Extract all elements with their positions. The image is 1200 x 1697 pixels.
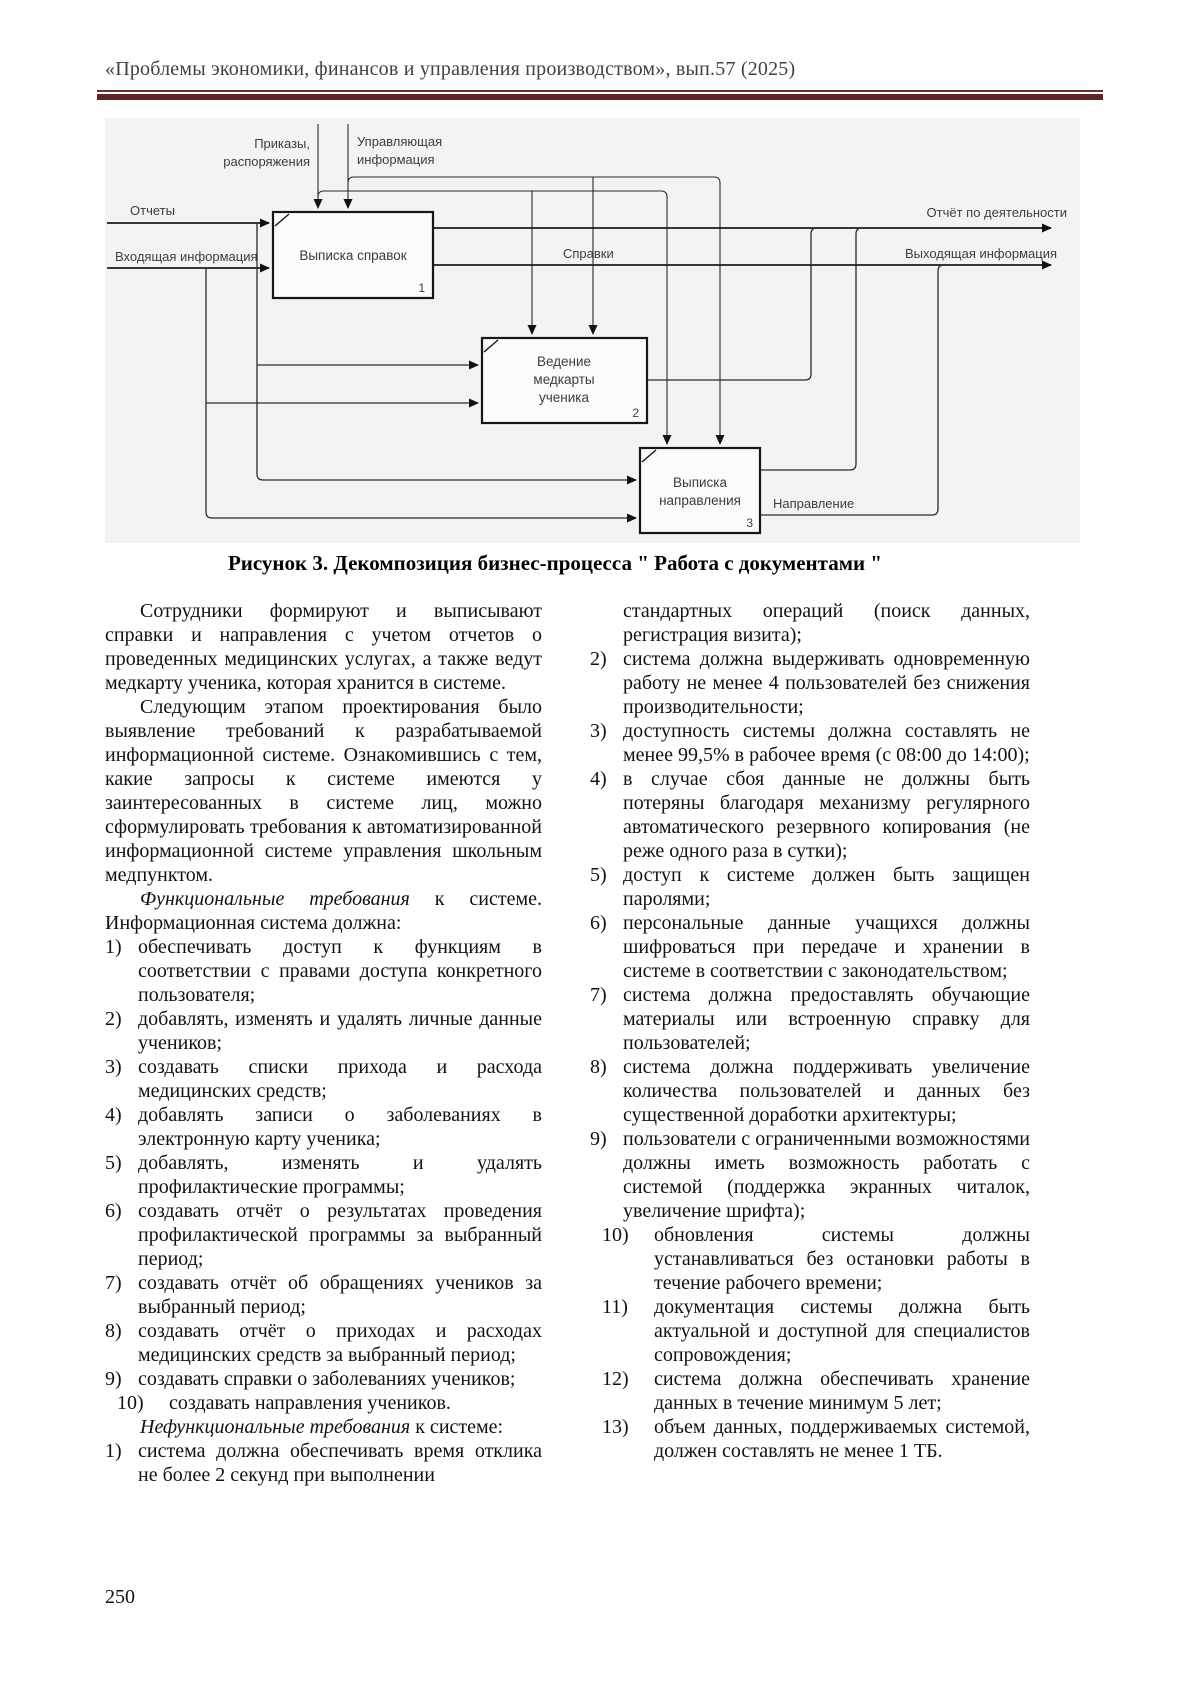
list-item-number: 2): [590, 647, 623, 671]
list-item: 10)обновления системы должны устанавлива…: [602, 1223, 1030, 1295]
list-item-text: создавать справки о заболеваниях ученико…: [138, 1367, 542, 1391]
list-item-text: система должна обеспечивать время отклик…: [138, 1439, 542, 1487]
header-rule-thick-band: [97, 94, 1103, 100]
paragraph: Следующим этапом проектирования было выя…: [105, 695, 542, 887]
body-columns: Сотрудники формируют и выписывают справк…: [105, 599, 1030, 1487]
list-item-text: доступность системы должна составлять не…: [623, 719, 1030, 767]
list-item-number: 9): [105, 1367, 138, 1391]
arrow-label-otchet-po-deyatelnosti: Отчёт по деятельности: [927, 205, 1067, 220]
idef0-diagram: Выписка справок 1 Ведение медкарты учени…: [105, 118, 1080, 543]
arrow-label-otchety: Отчеты: [130, 203, 175, 218]
list-item: 2)система должна выдерживать одновременн…: [590, 647, 1030, 719]
list-item-number: 10): [602, 1223, 654, 1247]
list-item: 3)создавать списки прихода и расхода мед…: [105, 1055, 542, 1103]
left-column: Сотрудники формируют и выписывают справк…: [105, 599, 542, 1487]
list-item-number: 7): [590, 983, 623, 1007]
list-item-number: 12): [602, 1367, 654, 1391]
process-box-1-number: 1: [418, 281, 425, 295]
header-rule: [97, 90, 1103, 103]
lead-rest: к системе:: [410, 1416, 503, 1438]
list-item: 6)персональные данные учащихся должны ши…: [590, 911, 1030, 983]
list-item: 3)доступность системы должна составлять …: [590, 719, 1030, 767]
arrow-label-spravki: Справки: [563, 246, 614, 261]
list-item-text: персональные данные учащихся должны шифр…: [623, 911, 1030, 983]
process-box-2-label-line2: медкарты: [533, 372, 594, 387]
list-item-number: 8): [105, 1319, 138, 1343]
list-item-text: создавать отчёт об обращениях учеников з…: [138, 1271, 542, 1319]
list-item-number: 6): [105, 1199, 138, 1223]
process-box-3-label-line1: Выписка: [673, 475, 728, 490]
journal-page: «Проблемы экономики, финансов и управлен…: [0, 0, 1200, 1697]
lead-italic: Функциональные требования: [140, 888, 410, 910]
list-item: 6)создавать отчёт о результатах проведен…: [105, 1199, 542, 1271]
process-box-3-number: 3: [746, 516, 753, 530]
list-item: 4)добавлять записи о заболеваниях в элек…: [105, 1103, 542, 1151]
list-item: 12)система должна обеспечивать хранение …: [602, 1367, 1030, 1415]
list-item: 8)система должна поддерживать увеличение…: [590, 1055, 1030, 1127]
arrow-label-upravlyayushchaya-line1: Управляющая: [357, 134, 442, 149]
list-item-text: пользователи с ограниченными возможностя…: [623, 1127, 1030, 1223]
list-item-text: система должна предоставлять обучающие м…: [623, 983, 1030, 1055]
list-item-text: добавлять, изменять и удалять личные дан…: [138, 1007, 542, 1055]
list-item: 7)создавать отчёт об обращениях учеников…: [105, 1271, 542, 1319]
list-item-text: добавлять, изменять и удалять профилакти…: [138, 1151, 542, 1199]
list-item: 13)объем данных, поддерживаемых системой…: [602, 1415, 1030, 1463]
process-box-3: Выписка направления 3: [640, 448, 760, 533]
lead-italic: Нефункциональные требования: [140, 1416, 410, 1438]
list-item: 1)система должна обеспечивать время откл…: [105, 1439, 542, 1487]
list-item-text: обновления системы должны устанавливатьс…: [654, 1223, 1030, 1295]
idef0-diagram-svg: Выписка справок 1 Ведение медкарты учени…: [105, 118, 1080, 543]
list-item-text: система должна поддерживать увеличение к…: [623, 1055, 1030, 1127]
list-item-text: в случае сбоя данные не должны быть поте…: [623, 767, 1030, 863]
list-item-text: создавать отчёт о приходах и расходах ме…: [138, 1319, 542, 1367]
arrow-label-upravlyayushchaya-line2: информация: [357, 152, 435, 167]
list-item-text: документация системы должна быть актуаль…: [654, 1295, 1030, 1367]
list-item-text: стандартных операций (поиск данных, реги…: [623, 599, 1030, 647]
arrow-label-prikazy-line1: Приказы,: [254, 136, 310, 151]
process-box-2-label-line3: ученика: [539, 390, 589, 405]
arrow-label-prikazy-line2: распоряжения: [223, 154, 310, 169]
journal-header: «Проблемы экономики, финансов и управлен…: [105, 58, 1105, 81]
list-item-text: обеспечивать доступ к функциям в соответ…: [138, 935, 542, 1007]
arrow-label-vhodyashchaya: Входящая информация: [115, 249, 258, 264]
list-item-text: создавать списки прихода и расхода медиц…: [138, 1055, 542, 1103]
process-box-3-label-line2: направления: [659, 493, 741, 508]
right-column: стандартных операций (поиск данных, реги…: [590, 599, 1030, 1487]
functional-requirements-lead: Функциональные требования к системе. Инф…: [105, 887, 542, 935]
list-item-text: система должна выдерживать одновременную…: [623, 647, 1030, 719]
list-item-number: 3): [105, 1055, 138, 1079]
list-item: 5)добавлять, изменять и удалять профилак…: [105, 1151, 542, 1199]
list-item: 5)доступ к системе должен быть защищен п…: [590, 863, 1030, 911]
list-item-number: 4): [105, 1103, 138, 1127]
list-item: 9)пользователи с ограниченными возможнос…: [590, 1127, 1030, 1223]
list-item-text: система должна обеспечивать хранение дан…: [654, 1367, 1030, 1415]
list-item: 9)создавать справки о заболеваниях учени…: [105, 1367, 542, 1391]
list-item: 8)создавать отчёт о приходах и расходах …: [105, 1319, 542, 1367]
output-merge-box2: [647, 228, 817, 380]
list-item-number: 1): [105, 935, 138, 959]
list-item-number: 10): [117, 1391, 169, 1415]
list-item-number: 8): [590, 1055, 623, 1079]
process-box-1-label: Выписка справок: [299, 248, 406, 263]
list-item-number: 5): [590, 863, 623, 887]
list-item: 11)документация системы должна быть акту…: [602, 1295, 1030, 1367]
list-item: 7)система должна предоставлять обучающие…: [590, 983, 1030, 1055]
list-item-text: объем данных, поддерживаемых системой, д…: [654, 1415, 1030, 1463]
list-item: 1)обеспечивать доступ к функциям в соотв…: [105, 935, 542, 1007]
figure-caption: Рисунок 3. Декомпозиция бизнес-процесса …: [105, 551, 1005, 576]
nonfunctional-requirements-lead: Нефункциональные требования к системе:: [105, 1415, 542, 1439]
output-merge-napravlenie: [760, 265, 944, 515]
process-box-1: Выписка справок 1: [273, 212, 433, 298]
list-item: 4)в случае сбоя данные не должны быть по…: [590, 767, 1030, 863]
list-item-number: 9): [590, 1127, 623, 1151]
paragraph: Сотрудники формируют и выписывают справк…: [105, 599, 542, 695]
arrow-label-vyhodyashchaya: Выходящая информация: [905, 246, 1057, 261]
list-item: 2)добавлять, изменять и удалять личные д…: [105, 1007, 542, 1055]
process-box-2-label-line1: Ведение: [537, 354, 591, 369]
list-item-number: 11): [602, 1295, 654, 1319]
process-box-2: Ведение медкарты ученика 2: [482, 338, 647, 423]
list-item-text: доступ к системе должен быть защищен пар…: [623, 863, 1030, 911]
list-item-number: 1): [105, 1439, 138, 1463]
list-item-number: 5): [105, 1151, 138, 1175]
list-item-number: 2): [105, 1007, 138, 1031]
list-item-number: 3): [590, 719, 623, 743]
list-item: 10)создавать направления учеников.: [117, 1391, 542, 1415]
arrow-label-napravlenie: Направление: [773, 496, 854, 511]
list-item-text: добавлять записи о заболеваниях в электр…: [138, 1103, 542, 1151]
list-item-text: создавать отчёт о результатах проведения…: [138, 1199, 542, 1271]
list-item-number: 13): [602, 1415, 654, 1439]
page-number: 250: [105, 1586, 135, 1609]
list-item-continuation: стандартных операций (поиск данных, реги…: [590, 599, 1030, 647]
list-item-number: 7): [105, 1271, 138, 1295]
list-item-number: 4): [590, 767, 623, 791]
list-item-number: 6): [590, 911, 623, 935]
process-box-2-number: 2: [632, 406, 639, 420]
list-item-text: создавать направления учеников.: [169, 1391, 542, 1415]
